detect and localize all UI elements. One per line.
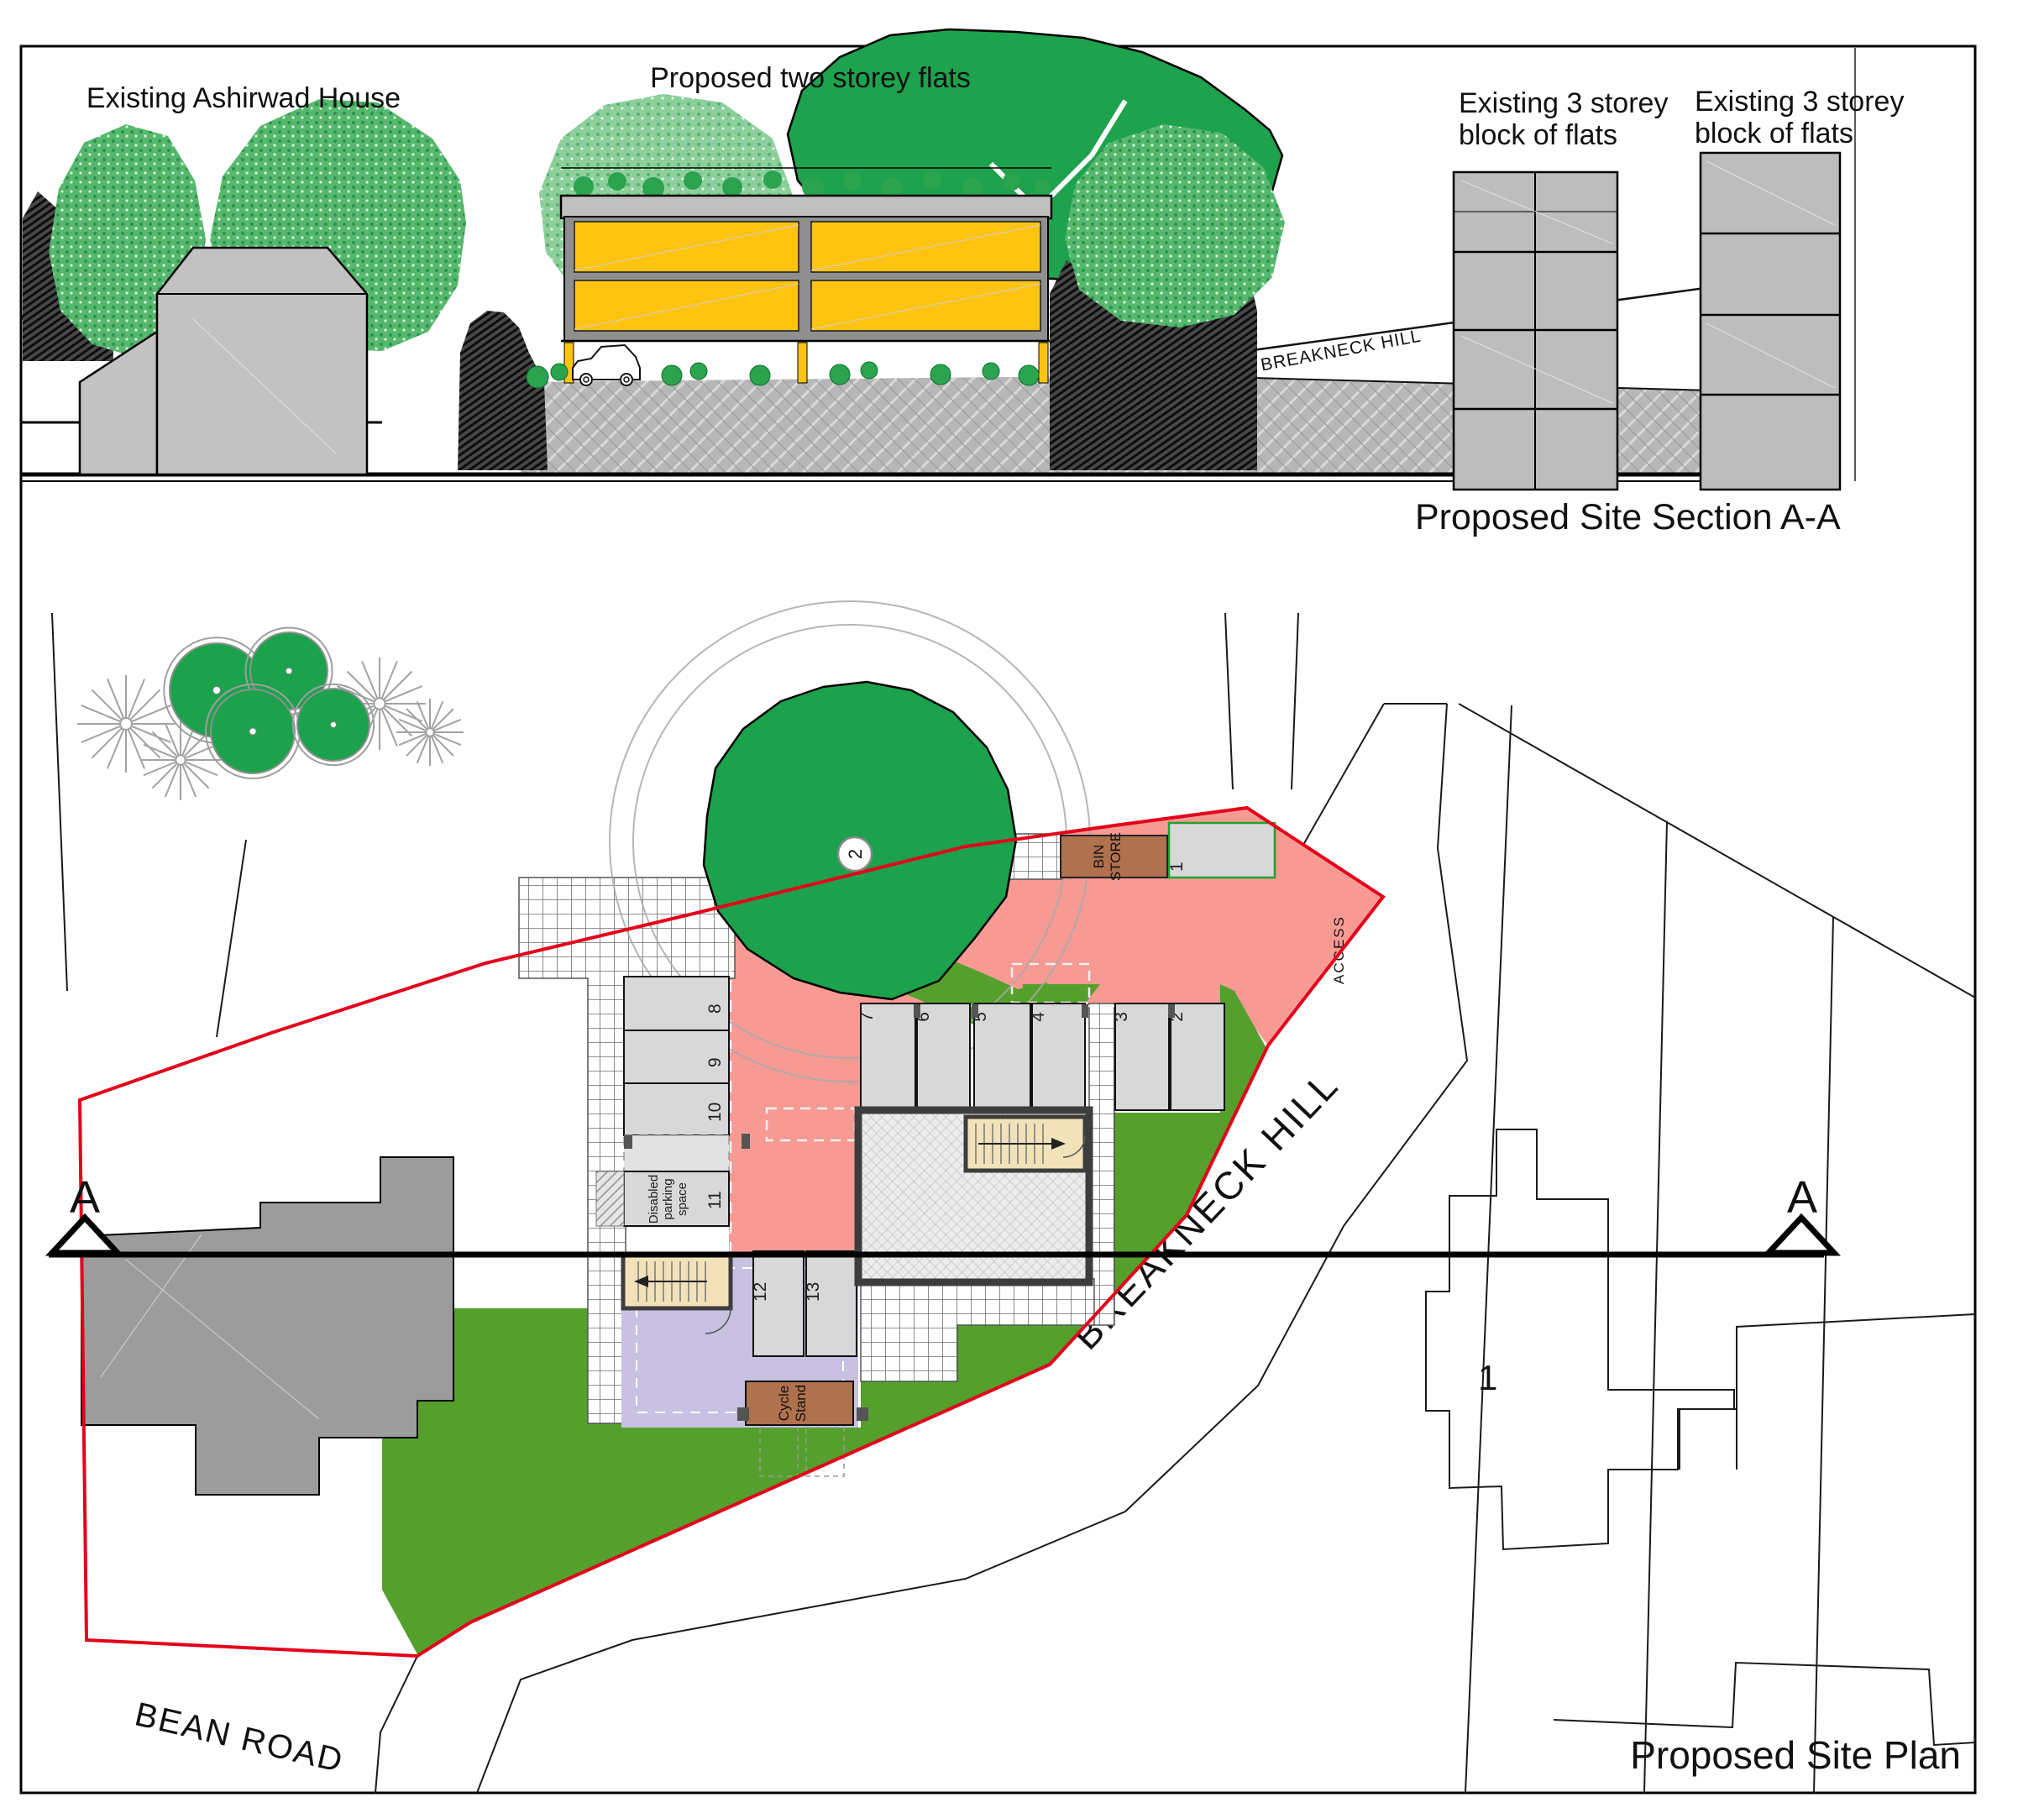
parking-space-number: 11: [705, 1191, 725, 1209]
neighbour-house-1-outline: [1426, 1129, 1734, 1549]
svg-text:parking: parking: [661, 1178, 675, 1219]
plot-line-far-west: [52, 613, 67, 991]
wheel-stop: [1168, 1004, 1175, 1018]
section-title: Proposed Site Section A-A: [1415, 497, 1841, 537]
tree-cluster-west: [77, 627, 464, 800]
parking-space-9: [624, 1030, 729, 1083]
parking-space-number: 13: [804, 1282, 823, 1302]
site-section: BREAKNECK HILL: [21, 29, 1904, 537]
section-marker-right-icon: [1769, 1218, 1834, 1253]
plot-line-east-house: [1737, 1314, 1975, 1470]
parking-row-north: 7 6 5 4 3 2: [857, 1003, 1224, 1110]
existing-flats-block-2: [1701, 153, 1840, 490]
existing-flats-block-1: [1454, 172, 1617, 490]
parking-space-13: [806, 1251, 857, 1356]
post-icon: [737, 1407, 749, 1421]
bean-road-label: BEAN ROAD: [131, 1695, 347, 1779]
parking-space-number: 7: [857, 1012, 877, 1022]
post-icon: [624, 1135, 632, 1149]
access-label: ACCESS: [1331, 915, 1347, 984]
pilotis-column-icon: [798, 343, 807, 383]
parking-space-number: 4: [1029, 1012, 1048, 1022]
pilotis-column-icon: [1039, 343, 1048, 383]
section-marker-right-label: A: [1787, 1172, 1817, 1223]
round-tree-icon: [293, 684, 374, 765]
breakneck-hill-west-edge-south: [375, 1656, 417, 1793]
parking-space-number: 10: [705, 1103, 725, 1122]
parking-space-number: 12: [751, 1282, 770, 1302]
car-icon: [573, 345, 640, 385]
skeletal-tree-icon: [396, 699, 464, 766]
wheel-stop: [914, 1004, 920, 1018]
plot-line-1: [1465, 705, 1512, 1793]
svg-text:Cycle: Cycle: [776, 1386, 792, 1422]
plot-line-west: [217, 840, 246, 1037]
round-tree-icon: [206, 684, 300, 778]
skeletal-tree-icon: [77, 675, 175, 773]
label-existing-flats-2-line2: block of flats: [1695, 118, 1853, 149]
road-fork-west-line: [1225, 613, 1233, 789]
label-existing-flats-1-line1: Existing 3 storey: [1459, 87, 1668, 119]
tree-tag-label: 2: [845, 849, 866, 859]
svg-text:Disabled: Disabled: [647, 1175, 661, 1224]
svg-text:STORE: STORE: [1108, 832, 1124, 881]
svg-text:Stand: Stand: [793, 1385, 809, 1422]
cypress-icon: [458, 311, 548, 470]
wheel-stop: [1082, 1004, 1088, 1018]
label-existing-flats-2-line1: Existing 3 storey: [1695, 86, 1904, 118]
post-icon: [742, 1134, 750, 1149]
post-icon: [857, 1407, 868, 1421]
parking-space-number: 8: [705, 1003, 725, 1014]
wheel-stop: [972, 1004, 978, 1018]
parking-space-number: 3: [1112, 1012, 1131, 1022]
neighbour-house-2-outline: [1680, 1409, 1737, 1470]
proposed-flats-section: [561, 168, 1051, 383]
plot-line-3: [1814, 917, 1833, 1793]
plan-title: Proposed Site Plan: [1630, 1733, 1961, 1777]
parking-space-12: [753, 1251, 804, 1356]
svg-text:space: space: [675, 1182, 689, 1216]
disabled-transfer-zone: [596, 1171, 624, 1226]
road-fork-east-line: [1292, 613, 1298, 789]
plot-diagonal-line: [1459, 704, 1975, 998]
site-plan: 1 BREAKNECK HILL BEAN ROAD: [49, 601, 1975, 1793]
plot-line-2: [1644, 821, 1667, 1793]
label-existing-flats-1-line2: block of flats: [1459, 119, 1617, 151]
neighbour-house-1-label: 1: [1478, 1358, 1497, 1397]
parking-space-number: 1: [1167, 862, 1187, 872]
label-proposed-flats: Proposed two storey flats: [650, 62, 971, 94]
label-existing-house: Existing Ashirwad House: [86, 82, 401, 114]
cycle-stand-label: Cycle Stand: [776, 1385, 809, 1422]
svg-text:BIN: BIN: [1091, 845, 1107, 868]
section-marker-left-label: A: [70, 1172, 100, 1223]
parking-space-number: 9: [705, 1057, 725, 1067]
drawing-sheet: BREAKNECK HILL: [0, 0, 2044, 1813]
parking-space-unmarked: [624, 1135, 729, 1171]
parking-space-8: [624, 977, 729, 1030]
